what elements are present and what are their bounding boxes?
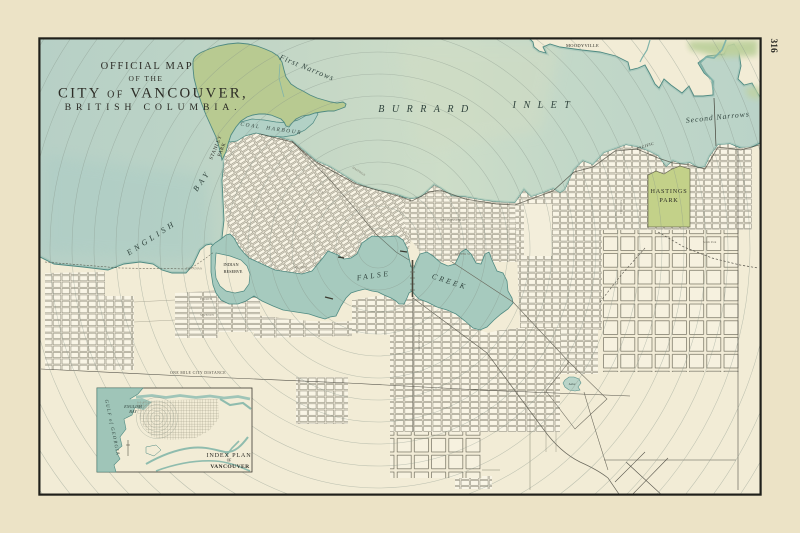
svg-text:MOODYVILLE: MOODYVILLE: [566, 43, 599, 48]
svg-text:WESTMINSTER: WESTMINSTER: [417, 330, 421, 351]
svg-text:RESERVE: RESERVE: [224, 269, 243, 274]
svg-text:South Park: South Park: [703, 240, 717, 244]
svg-text:INDIAN: INDIAN: [223, 262, 238, 267]
svg-text:OF THE: OF THE: [129, 74, 164, 83]
svg-text:CITY OF VANCOUVER,: CITY OF VANCOUVER,: [58, 86, 248, 102]
svg-text:OF: OF: [227, 459, 232, 463]
svg-text:CANADIAN: CANADIAN: [186, 266, 203, 271]
svg-text:VANCOUVER: VANCOUVER: [210, 464, 250, 470]
svg-text:INLET: INLET: [512, 100, 578, 111]
svg-text:PARK: PARK: [659, 197, 678, 204]
svg-text:316: 316: [768, 39, 778, 54]
svg-text:KEEFER ST: KEEFER ST: [455, 252, 471, 256]
svg-text:HASTINGS: HASTINGS: [651, 188, 688, 195]
svg-text:BAY: BAY: [129, 409, 137, 414]
svg-text:FOURTH: FOURTH: [200, 297, 213, 301]
svg-text:SEVENTH: SEVENTH: [200, 313, 214, 317]
svg-text:ONE MILE CITY DISTANCE: ONE MILE CITY DISTANCE: [170, 371, 226, 375]
svg-text:BRITISH COLUMBIA.: BRITISH COLUMBIA.: [65, 102, 242, 113]
svg-text:BURRARD: BURRARD: [378, 104, 476, 115]
svg-text:PACIFIC: PACIFIC: [295, 265, 306, 270]
svg-text:OFFICIAL MAP: OFFICIAL MAP: [101, 61, 194, 72]
svg-text:WESTMINSTER AV: WESTMINSTER AV: [440, 218, 467, 222]
svg-text:VICTORIA: VICTORIA: [619, 200, 623, 215]
